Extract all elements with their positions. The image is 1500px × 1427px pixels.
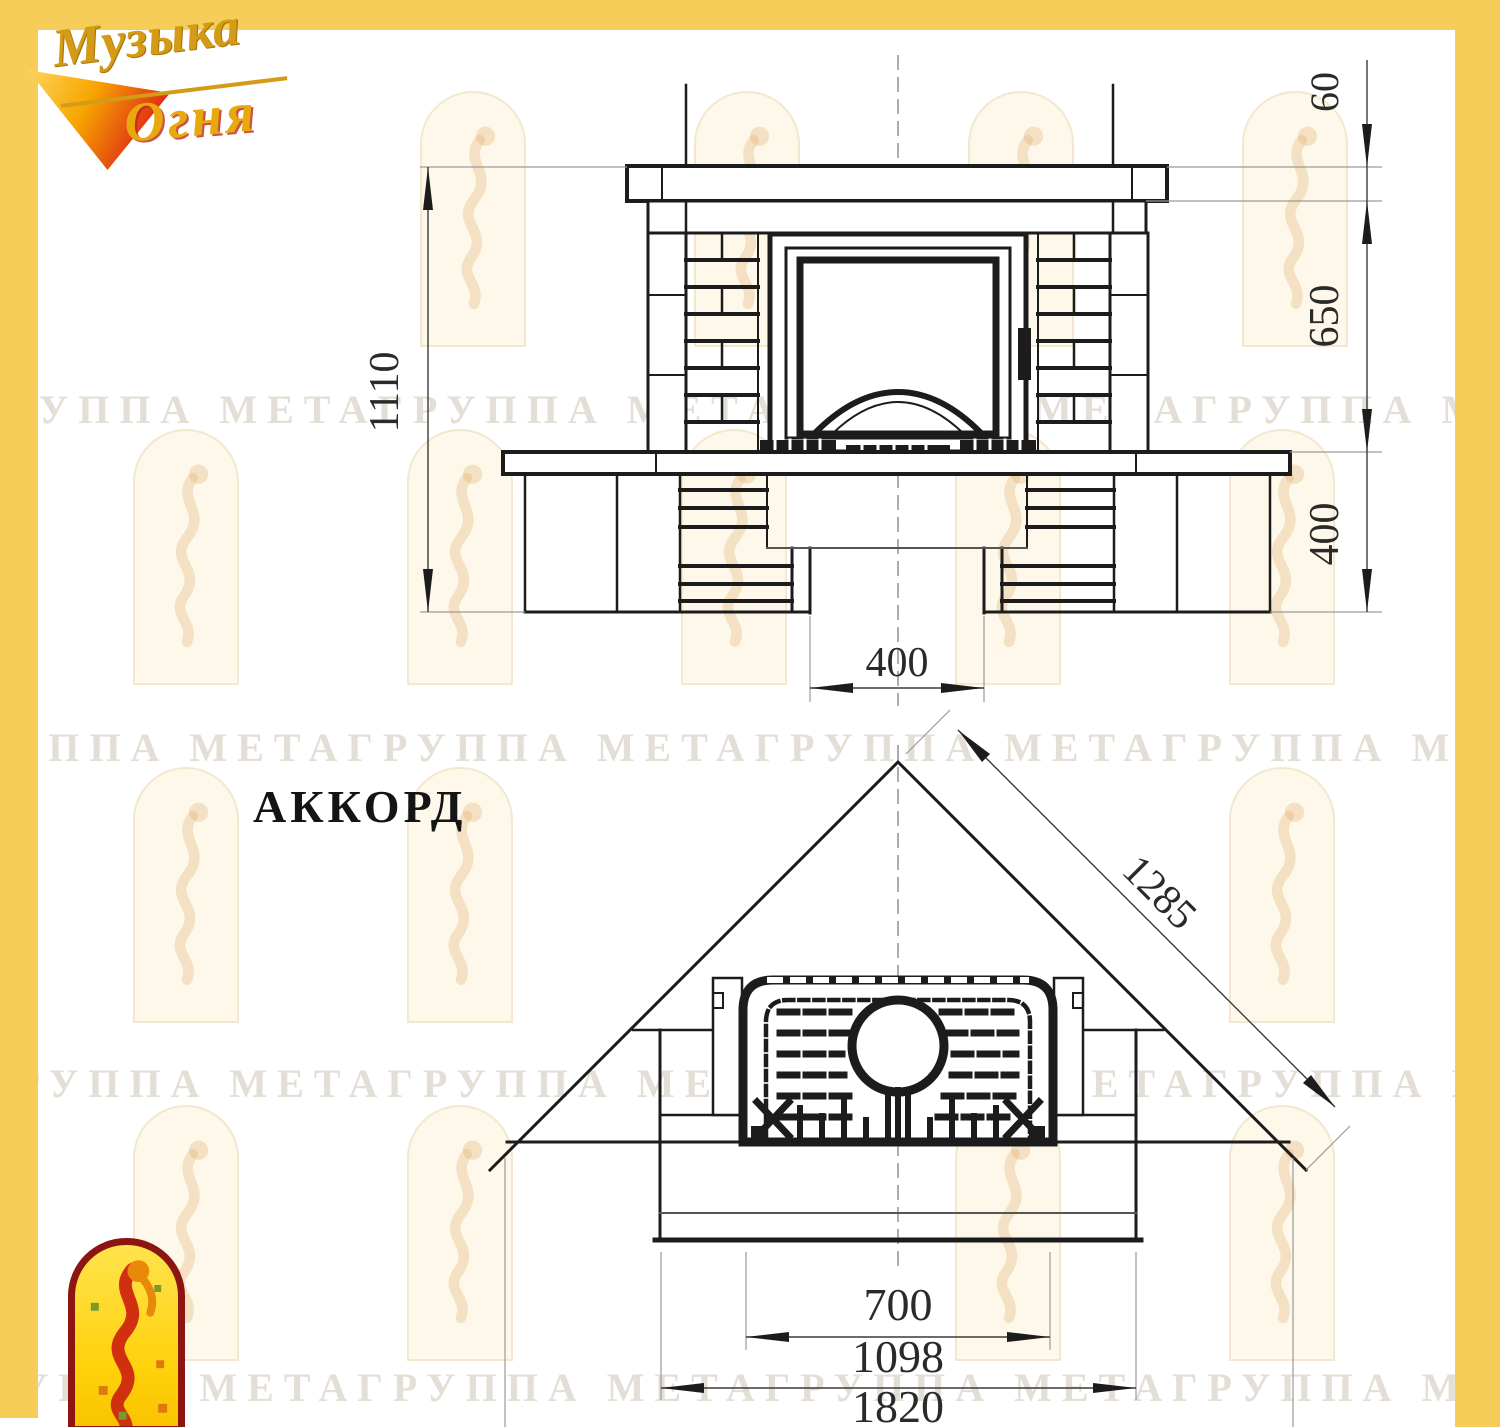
corner-logo [68,1238,185,1427]
firebox-plan [743,980,1053,1142]
dim-label-firebox-height: 650 [1302,285,1348,348]
right-pillar-plan [1054,978,1083,1115]
dim-label-plinth-height: 400 [1302,503,1348,566]
page-background: ГРУППА МЕТАГРУППА МЕТАГРУППА МЕТАГРУППА … [0,0,1500,1427]
left-outer-column [648,233,686,452]
model-title: АККОРД [253,780,466,833]
firebox-door [760,234,1036,458]
brick-courses-left [686,233,758,422]
fireplace-technical-drawing: 1110 60 650 400 400 [0,0,1500,1427]
brand-name-line1: Музыка [49,0,244,79]
dim-label-recess-width: 400 [866,640,929,686]
flue-outlet [852,1000,944,1092]
brand-name-line2: Огня [121,80,259,155]
left-pillar-plan [713,978,742,1115]
front-view [503,85,1290,613]
dim-label-firebox-width: 700 [864,1279,933,1330]
dim-label-shelf-offset: 60 [1302,72,1347,112]
dim-label-diagonal: 1285 [1113,847,1205,939]
dim-label-body-width: 1098 [852,1331,944,1382]
flame-dancer-icon [75,1245,178,1426]
right-outer-column [1110,233,1148,452]
under-mantel-band [648,201,1146,233]
frame-border-right [1455,0,1500,1427]
frame-border-left [0,0,38,1418]
chimney-lines [686,85,1113,166]
brick-courses-right [1038,233,1110,422]
dim-label-overall-width: 1820 [852,1381,944,1427]
dim-label-total-height: 1110 [362,352,408,433]
brand-logo: Музыка Огня [22,2,322,182]
mantel-shelf [627,166,1167,201]
door-handle [1018,328,1031,380]
hearth-shelf [503,452,1290,474]
